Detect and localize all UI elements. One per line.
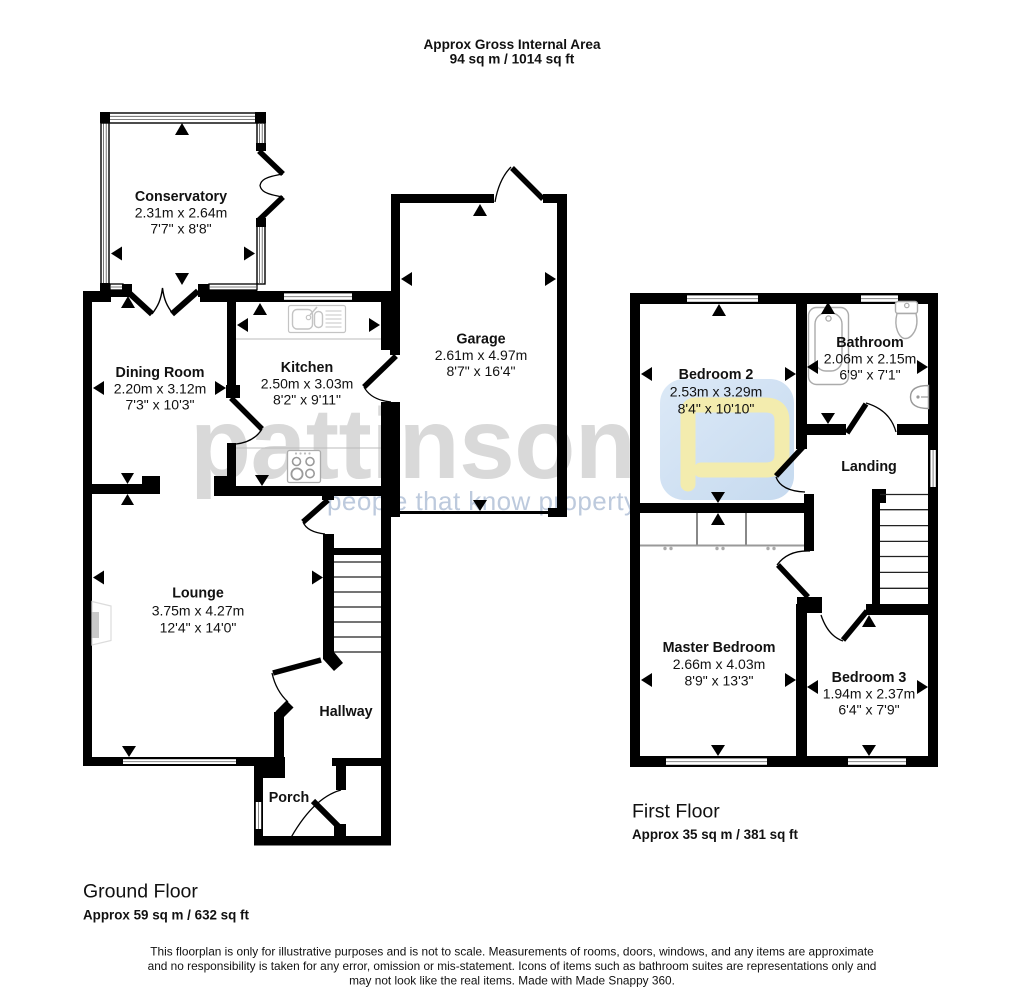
svg-text:7'3" x 10'3": 7'3" x 10'3" bbox=[126, 397, 195, 413]
svg-text:8'9" x 13'3": 8'9" x 13'3" bbox=[685, 673, 754, 689]
svg-text:pattinson: pattinson bbox=[190, 388, 635, 500]
svg-text:Landing: Landing bbox=[841, 459, 897, 475]
svg-text:2.31m x 2.64m: 2.31m x 2.64m bbox=[135, 205, 228, 221]
svg-text:Garage: Garage bbox=[456, 332, 505, 348]
svg-text:7'7" x 8'8": 7'7" x 8'8" bbox=[150, 221, 211, 237]
svg-text:12'4" x 14'0": 12'4" x 14'0" bbox=[160, 620, 237, 636]
svg-text:2.20m x 3.12m: 2.20m x 3.12m bbox=[114, 381, 207, 397]
svg-text:8'2" x 9'11": 8'2" x 9'11" bbox=[273, 392, 341, 408]
svg-text:Master Bedroom: Master Bedroom bbox=[663, 640, 776, 656]
svg-text:Kitchen: Kitchen bbox=[281, 360, 333, 376]
svg-text:1.94m x 2.37m: 1.94m x 2.37m bbox=[823, 686, 916, 702]
svg-text:2.61m x 4.97m: 2.61m x 4.97m bbox=[435, 347, 528, 363]
svg-text:Dining Room: Dining Room bbox=[116, 365, 205, 381]
svg-text:Approx 35 sq m / 381 sq ft: Approx 35 sq m / 381 sq ft bbox=[632, 827, 798, 842]
svg-text:may not look like the real ite: may not look like the real items. Made w… bbox=[349, 974, 675, 988]
svg-text:Ground Floor: Ground Floor bbox=[83, 881, 198, 903]
svg-text:3.75m x 4.27m: 3.75m x 4.27m bbox=[152, 603, 245, 619]
svg-text:Bathroom: Bathroom bbox=[836, 335, 904, 351]
svg-text:Bedroom 2: Bedroom 2 bbox=[679, 367, 754, 383]
svg-text:2.50m x 3.03m: 2.50m x 3.03m bbox=[261, 376, 354, 392]
svg-text:and no responsibility is taken: and no responsibility is taken for any e… bbox=[148, 959, 877, 973]
svg-text:8'4" x 10'10": 8'4" x 10'10" bbox=[678, 401, 755, 417]
svg-text:Hallway: Hallway bbox=[319, 704, 372, 720]
svg-text:2.53m x 3.29m: 2.53m x 3.29m bbox=[670, 384, 763, 400]
svg-text:Bedroom 3: Bedroom 3 bbox=[832, 670, 907, 686]
svg-text:6'9" x 7'1": 6'9" x 7'1" bbox=[839, 367, 900, 383]
svg-text:6'4" x 7'9": 6'4" x 7'9" bbox=[838, 702, 899, 718]
svg-text:2.06m x 2.15m: 2.06m x 2.15m bbox=[824, 351, 917, 367]
svg-text:First Floor: First Floor bbox=[632, 801, 720, 823]
svg-text:Approx Gross Internal Area: Approx Gross Internal Area bbox=[423, 37, 600, 52]
svg-text:This floorplan is only for ill: This floorplan is only for illustrative … bbox=[150, 945, 874, 959]
svg-text:94 sq m / 1014 sq ft: 94 sq m / 1014 sq ft bbox=[450, 52, 575, 67]
svg-text:Conservatory: Conservatory bbox=[135, 189, 227, 205]
svg-text:8'7" x 16'4": 8'7" x 16'4" bbox=[447, 363, 516, 379]
svg-text:Lounge: Lounge bbox=[172, 586, 224, 602]
svg-text:Porch: Porch bbox=[269, 790, 310, 806]
svg-text:2.66m x 4.03m: 2.66m x 4.03m bbox=[673, 656, 766, 672]
svg-text:Approx 59 sq m / 632 sq ft: Approx 59 sq m / 632 sq ft bbox=[83, 908, 249, 923]
